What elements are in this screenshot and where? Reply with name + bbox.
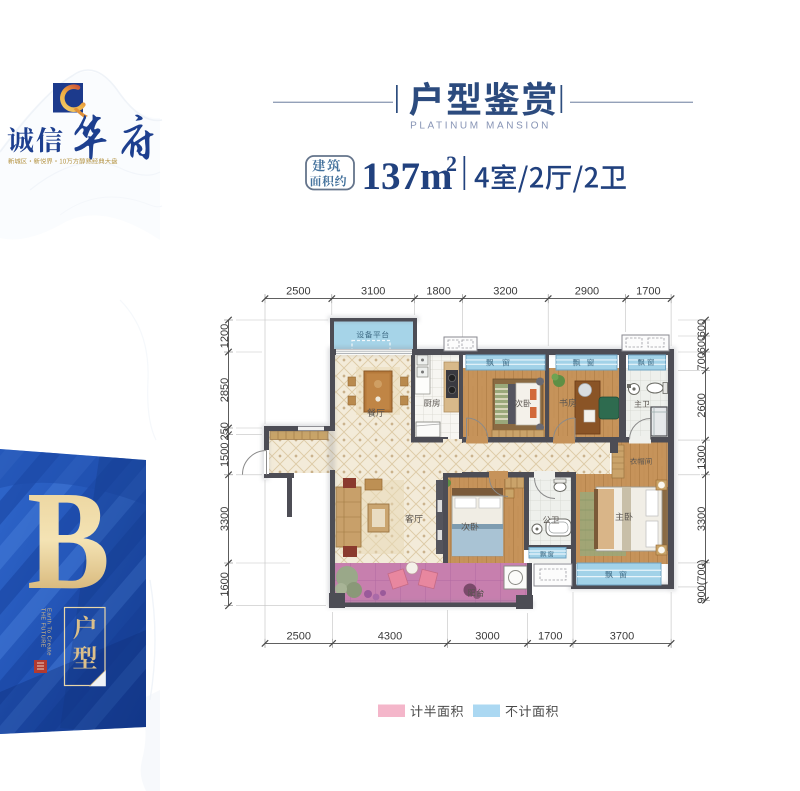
svg-text:3300: 3300 <box>219 507 231 531</box>
svg-text:600: 600 <box>696 319 708 337</box>
svg-text:3200: 3200 <box>493 286 517 298</box>
svg-text:PLATINUM MANSION: PLATINUM MANSION <box>410 121 551 132</box>
svg-text:1600: 1600 <box>219 572 231 596</box>
svg-text:2600: 2600 <box>696 393 708 417</box>
svg-text:THE FUTURE: THE FUTURE <box>40 608 46 648</box>
svg-text:3100: 3100 <box>361 286 385 298</box>
svg-text:250: 250 <box>219 422 231 440</box>
svg-text:4300: 4300 <box>378 630 402 642</box>
svg-text:1800: 1800 <box>426 286 450 298</box>
svg-text:1700: 1700 <box>538 630 562 642</box>
svg-text:2850: 2850 <box>219 378 231 402</box>
svg-text:B: B <box>27 461 110 619</box>
svg-text:2500: 2500 <box>287 630 311 642</box>
svg-text:700: 700 <box>696 352 708 370</box>
svg-text:600: 600 <box>696 335 708 353</box>
svg-text:3000: 3000 <box>475 630 499 642</box>
svg-text:1700: 1700 <box>636 286 660 298</box>
svg-text:1300: 1300 <box>696 445 708 469</box>
svg-text:1500: 1500 <box>219 443 231 467</box>
svg-text:2: 2 <box>446 151 457 176</box>
svg-text:137m: 137m <box>362 155 453 198</box>
svg-text:3700: 3700 <box>610 630 634 642</box>
svg-text:2500: 2500 <box>286 286 310 298</box>
svg-text:3300: 3300 <box>696 507 708 531</box>
svg-text:900(700): 900(700) <box>696 560 708 604</box>
svg-text:2900: 2900 <box>575 286 599 298</box>
svg-text:1200: 1200 <box>219 324 231 348</box>
